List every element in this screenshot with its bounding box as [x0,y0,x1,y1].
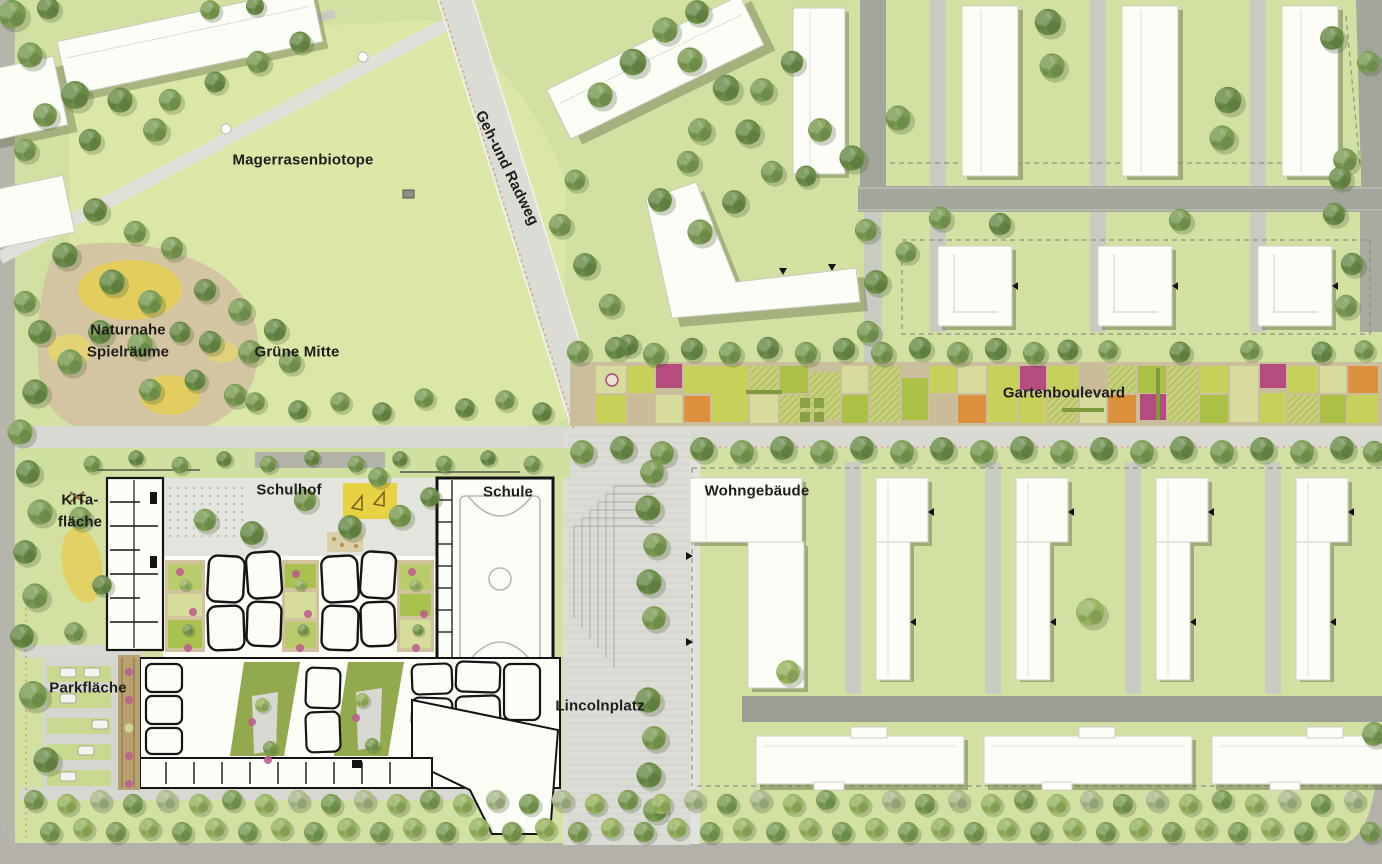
label-magerrasenbiotope: Magerrasenbiotope [233,152,374,169]
label-gruene-mitte: Grüne Mitte [255,344,340,361]
kita-wing [107,478,163,650]
label-naturnahe-spielraeume: Naturnahe Spielräume [87,319,169,363]
allee-tree-rows [24,790,1382,845]
label-wohngebaeude: Wohngebäude [705,483,810,500]
label-gartenboulevard: Gartenboulevard [1003,385,1125,402]
label-kita-flaeche: KiTa- fläche [58,489,102,533]
sports-hall [437,478,553,678]
label-lincolnplatz: Lincolnplatz [555,698,644,715]
label-kita-line2: fläche [58,513,102,530]
label-schule: Schule [483,484,533,501]
label-naturnahe-line1: Naturnahe [90,321,166,338]
school-complex [20,448,570,834]
label-schulhof: Schulhof [256,482,321,499]
label-parkflaeche: Parkfläche [49,680,126,697]
garden-boulevard [570,362,1382,426]
label-naturnahe-line2: Spielräume [87,343,169,360]
label-kita-line1: KiTa- [61,491,98,508]
lincolnplatz-plaza [563,428,693,845]
site-plan: Magerrasenbiotope Geh-und Radweg Naturna… [0,0,1382,864]
site-plan-graphics [0,0,1382,864]
